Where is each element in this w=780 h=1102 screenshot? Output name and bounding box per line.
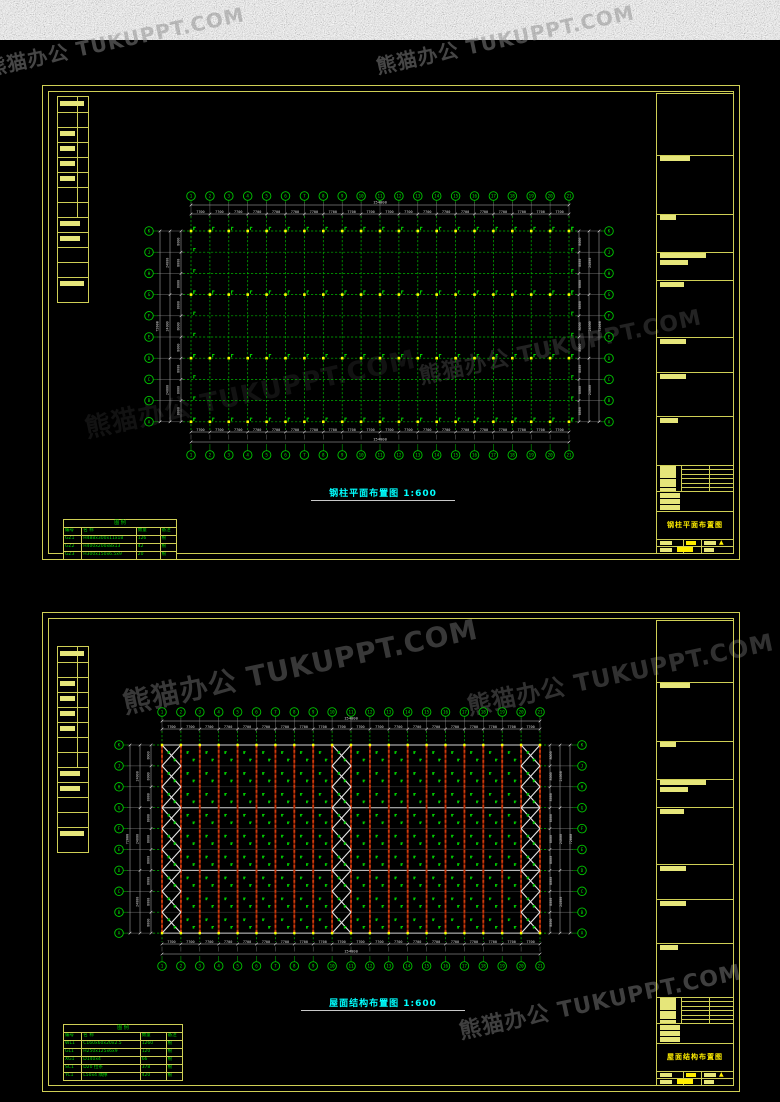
legend-header-cell: 备注 bbox=[161, 528, 176, 535]
strip-row-line bbox=[58, 157, 88, 158]
titleblock-table-line bbox=[681, 487, 733, 488]
strip-row-line bbox=[58, 722, 88, 723]
titleblock-table-line bbox=[681, 1019, 733, 1020]
svg-text:72000: 72000 bbox=[125, 834, 129, 845]
svg-text:7700: 7700 bbox=[243, 725, 251, 729]
svg-text:19: 19 bbox=[500, 710, 506, 715]
titleblock-table-bar bbox=[660, 474, 676, 478]
legend-header-cell: 数量 bbox=[137, 528, 161, 535]
svg-text:17: 17 bbox=[491, 194, 497, 199]
titleblock-label-bar bbox=[660, 260, 688, 265]
svg-text:8000: 8000 bbox=[549, 814, 553, 822]
svg-text:7700: 7700 bbox=[253, 210, 261, 214]
svg-text:7700: 7700 bbox=[461, 210, 469, 214]
svg-text:24000: 24000 bbox=[135, 834, 139, 844]
legend-cell: 120 bbox=[141, 1049, 167, 1056]
svg-text:8000: 8000 bbox=[146, 919, 150, 927]
svg-text:7700: 7700 bbox=[385, 210, 393, 214]
svg-text:13: 13 bbox=[415, 453, 421, 458]
svg-text:15: 15 bbox=[453, 453, 459, 458]
svg-text:7700: 7700 bbox=[196, 428, 204, 432]
svg-text:7700: 7700 bbox=[518, 210, 526, 214]
svg-text:8000: 8000 bbox=[176, 301, 180, 309]
svg-text:7700: 7700 bbox=[234, 210, 242, 214]
legend-title: 图 例 bbox=[64, 520, 176, 528]
legend-data-row: XG1D140x466根 bbox=[64, 1057, 182, 1065]
svg-text:7700: 7700 bbox=[432, 725, 440, 729]
svg-text:8000: 8000 bbox=[578, 238, 582, 246]
svg-text:8000: 8000 bbox=[549, 877, 553, 885]
strip-row-line bbox=[58, 202, 88, 203]
svg-text:7700: 7700 bbox=[300, 940, 308, 944]
titleblock-table-divider bbox=[709, 997, 710, 1023]
strip-row-line bbox=[58, 127, 88, 128]
svg-text:7700: 7700 bbox=[337, 940, 345, 944]
legend-cell: 根 bbox=[161, 544, 176, 551]
svg-text:7700: 7700 bbox=[470, 725, 478, 729]
svg-text:7700: 7700 bbox=[366, 428, 374, 432]
svg-text:7700: 7700 bbox=[461, 428, 469, 432]
svg-text:8000: 8000 bbox=[578, 301, 582, 309]
titleblock-divider bbox=[657, 864, 733, 865]
strip-row-line bbox=[58, 277, 88, 278]
titleblock-drawing-name-text: 屋面结构布置图 bbox=[667, 1052, 723, 1062]
legend-cell: GZ3 bbox=[64, 552, 82, 559]
svg-text:24000: 24000 bbox=[165, 385, 169, 395]
svg-text:15: 15 bbox=[424, 964, 430, 969]
svg-text:7700: 7700 bbox=[356, 725, 364, 729]
svg-text:154000: 154000 bbox=[344, 949, 358, 954]
svg-text:24000: 24000 bbox=[588, 258, 592, 268]
titleblock-divider bbox=[657, 943, 733, 944]
svg-text:7700: 7700 bbox=[480, 428, 488, 432]
titleblock-table-divider bbox=[681, 997, 682, 1023]
sheet2-plan-title: 屋面结构布置图 1:600 bbox=[301, 996, 465, 1011]
strip-entry-bar bbox=[60, 651, 84, 656]
svg-text:8000: 8000 bbox=[578, 280, 582, 288]
roof-structure-plan-drawing: 7700770077007700770077007700770077007700… bbox=[43, 613, 739, 1091]
legend-cell: C160x60x20x2.5 bbox=[82, 1041, 140, 1048]
titleblock-label-bar bbox=[660, 156, 690, 161]
legend-header-cell: 名 称 bbox=[82, 1033, 140, 1040]
svg-text:7700: 7700 bbox=[480, 210, 488, 214]
svg-text:8000: 8000 bbox=[578, 259, 582, 267]
svg-text:8000: 8000 bbox=[146, 856, 150, 864]
svg-text:24000: 24000 bbox=[165, 321, 169, 331]
legend-cell: H400x200x8x13 bbox=[82, 544, 136, 551]
svg-text:154000: 154000 bbox=[373, 437, 387, 442]
sheet1-legend-table: 图 例编号名 称数量备注GZ1H488x300x11x18126根GZ2H400… bbox=[63, 519, 177, 560]
sheet2-title-block: 屋面结构布置图▲ bbox=[656, 620, 734, 1086]
strip-entry-bar bbox=[60, 146, 75, 151]
legend-header-cell: 数量 bbox=[141, 1033, 167, 1040]
titleblock-label-bar bbox=[660, 1025, 680, 1030]
svg-text:7700: 7700 bbox=[375, 940, 383, 944]
titleblock-divider bbox=[657, 899, 733, 900]
legend-title: 图 例 bbox=[64, 1025, 182, 1033]
svg-text:11: 11 bbox=[348, 710, 354, 715]
legend-data-row: GL1H250x125x6x9120根 bbox=[64, 1049, 182, 1057]
strip-row-line bbox=[58, 262, 88, 263]
strip-row-line bbox=[58, 752, 88, 753]
strip-row-line bbox=[58, 217, 88, 218]
svg-text:8000: 8000 bbox=[146, 772, 150, 780]
svg-text:24000: 24000 bbox=[135, 771, 139, 781]
svg-text:20: 20 bbox=[519, 710, 525, 715]
titleblock-table-line bbox=[681, 478, 733, 479]
svg-text:7700: 7700 bbox=[394, 725, 402, 729]
svg-text:13: 13 bbox=[415, 194, 421, 199]
svg-text:8000: 8000 bbox=[146, 793, 150, 801]
titleblock-label-bar bbox=[660, 493, 680, 498]
titleblock-label-bar bbox=[660, 505, 680, 510]
svg-text:7700: 7700 bbox=[262, 725, 270, 729]
svg-text:8000: 8000 bbox=[578, 407, 582, 415]
svg-text:7700: 7700 bbox=[329, 428, 337, 432]
svg-text:18: 18 bbox=[481, 710, 487, 715]
svg-text:21: 21 bbox=[566, 194, 572, 199]
legend-header-cell: 编号 bbox=[64, 1033, 82, 1040]
svg-text:8000: 8000 bbox=[549, 856, 553, 864]
legend-data-row: GZ3H300x150x6.5x920根 bbox=[64, 552, 176, 559]
legend-cell: 根 bbox=[161, 552, 176, 559]
strip-entry-bar bbox=[60, 726, 75, 731]
svg-text:7700: 7700 bbox=[489, 725, 497, 729]
titleblock-table-bar bbox=[660, 1002, 676, 1006]
svg-text:7700: 7700 bbox=[318, 940, 326, 944]
titleblock-table-bar bbox=[660, 483, 676, 487]
svg-text:7700: 7700 bbox=[536, 210, 544, 214]
svg-text:10: 10 bbox=[330, 964, 336, 969]
svg-text:16: 16 bbox=[443, 964, 449, 969]
legend-cell: 66 bbox=[141, 1057, 167, 1064]
svg-text:7700: 7700 bbox=[432, 940, 440, 944]
svg-text:21: 21 bbox=[566, 453, 572, 458]
svg-text:8000: 8000 bbox=[549, 835, 553, 843]
svg-text:7700: 7700 bbox=[423, 428, 431, 432]
svg-text:21: 21 bbox=[537, 964, 543, 969]
titleblock-label-bar bbox=[660, 945, 678, 950]
svg-text:7700: 7700 bbox=[366, 210, 374, 214]
svg-text:19: 19 bbox=[500, 964, 506, 969]
svg-text:7700: 7700 bbox=[442, 428, 450, 432]
svg-text:72000: 72000 bbox=[155, 321, 159, 332]
svg-text:24000: 24000 bbox=[559, 834, 563, 844]
titleblock-label-bar bbox=[660, 215, 676, 220]
strip-entry-bar bbox=[60, 786, 80, 791]
svg-text:7700: 7700 bbox=[272, 210, 280, 214]
titleblock-label-bar bbox=[660, 742, 676, 747]
svg-text:7700: 7700 bbox=[442, 210, 450, 214]
svg-text:7700: 7700 bbox=[536, 428, 544, 432]
legend-cell: 420 bbox=[141, 1073, 167, 1080]
svg-text:20: 20 bbox=[519, 964, 525, 969]
titleblock-divider bbox=[657, 280, 733, 281]
svg-text:72000: 72000 bbox=[569, 834, 573, 845]
svg-text:15: 15 bbox=[453, 194, 459, 199]
svg-text:8000: 8000 bbox=[176, 280, 180, 288]
svg-text:10: 10 bbox=[359, 194, 365, 199]
svg-text:7700: 7700 bbox=[281, 725, 289, 729]
svg-text:8000: 8000 bbox=[176, 386, 180, 394]
svg-text:7700: 7700 bbox=[281, 940, 289, 944]
svg-text:20: 20 bbox=[548, 194, 554, 199]
svg-text:7700: 7700 bbox=[224, 725, 232, 729]
strip-row-line bbox=[58, 142, 88, 143]
svg-text:8000: 8000 bbox=[549, 751, 553, 759]
titleblock-grid-bar bbox=[660, 548, 672, 552]
svg-text:16: 16 bbox=[443, 710, 449, 715]
svg-text:24000: 24000 bbox=[588, 385, 592, 395]
legend-cell: 20 bbox=[137, 552, 161, 559]
svg-text:18: 18 bbox=[510, 453, 516, 458]
legend-cell: 126 bbox=[137, 536, 161, 543]
svg-text:7700: 7700 bbox=[310, 428, 318, 432]
sheet1-plan-title: 钢柱平面布置图 1:600 bbox=[311, 486, 455, 501]
svg-text:24000: 24000 bbox=[135, 897, 139, 907]
svg-text:8000: 8000 bbox=[549, 919, 553, 927]
titleblock-table-bar bbox=[660, 1011, 676, 1015]
svg-text:J: J bbox=[608, 250, 611, 255]
titleblock-label-bar bbox=[660, 1037, 680, 1042]
legend-header-row: 编号名 称数量备注 bbox=[64, 528, 176, 536]
svg-text:7700: 7700 bbox=[507, 940, 515, 944]
legend-cell: 根 bbox=[167, 1041, 182, 1048]
strip-row-line bbox=[58, 812, 88, 813]
svg-text:7700: 7700 bbox=[375, 725, 383, 729]
strip-entry-bar bbox=[60, 681, 75, 686]
strip-row-line bbox=[58, 827, 88, 828]
svg-text:11: 11 bbox=[348, 964, 354, 969]
titleblock-grid-bar bbox=[704, 1080, 714, 1084]
legend-cell: XG1 bbox=[64, 1057, 82, 1064]
legend-header-cell: 编号 bbox=[64, 528, 82, 535]
strip-entry-bar bbox=[60, 831, 84, 836]
svg-text:12: 12 bbox=[367, 964, 373, 969]
svg-text:15: 15 bbox=[424, 710, 430, 715]
svg-text:13: 13 bbox=[386, 710, 392, 715]
titleblock-table-line bbox=[681, 1006, 733, 1007]
legend-cell: 根 bbox=[167, 1057, 182, 1064]
legend-data-row: GZ1H488x300x11x18126根 bbox=[64, 536, 176, 544]
svg-text:7700: 7700 bbox=[356, 940, 364, 944]
strip-entry-bar bbox=[60, 221, 80, 226]
titleblock-divider bbox=[657, 372, 733, 373]
legend-cell: SC1 bbox=[64, 1065, 82, 1072]
svg-text:24000: 24000 bbox=[165, 258, 169, 268]
svg-text:14: 14 bbox=[434, 194, 440, 199]
titleblock-divider bbox=[657, 337, 733, 338]
svg-text:7700: 7700 bbox=[499, 210, 507, 214]
strip-entry-bar bbox=[60, 236, 80, 241]
titleblock-table-bar bbox=[660, 479, 676, 483]
legend-cell: H250x125x6x9 bbox=[82, 1049, 140, 1056]
svg-text:8000: 8000 bbox=[549, 793, 553, 801]
svg-text:J: J bbox=[581, 764, 584, 769]
strip-row-line bbox=[58, 247, 88, 248]
strip-row-line bbox=[58, 172, 88, 173]
svg-text:8000: 8000 bbox=[146, 898, 150, 906]
legend-cell: WL1 bbox=[64, 1041, 82, 1048]
legend-data-row: SC1D20 拉条378根 bbox=[64, 1065, 182, 1073]
svg-text:14: 14 bbox=[434, 453, 440, 458]
titleblock-table-bar bbox=[660, 470, 676, 474]
strip-row-line bbox=[58, 232, 88, 233]
titleblock-table-divider bbox=[709, 465, 710, 491]
legend-data-row: WL1C160x60x20x2.51260根 bbox=[64, 1041, 182, 1049]
titleblock-table-bar bbox=[660, 466, 676, 470]
titleblock-label-bar bbox=[660, 253, 706, 258]
titleblock-label-bar bbox=[660, 901, 686, 906]
svg-text:8000: 8000 bbox=[176, 322, 180, 330]
svg-text:24000: 24000 bbox=[588, 321, 592, 331]
svg-text:21: 21 bbox=[537, 710, 543, 715]
svg-text:8000: 8000 bbox=[176, 344, 180, 352]
strip-entry-bar bbox=[60, 696, 75, 701]
titleblock-table-bar bbox=[660, 1015, 676, 1019]
svg-text:7700: 7700 bbox=[318, 725, 326, 729]
titleblock-drawing-name-text: 钢柱平面布置图 bbox=[667, 520, 723, 530]
svg-text:10: 10 bbox=[330, 710, 336, 715]
svg-text:12: 12 bbox=[367, 710, 373, 715]
titleblock-table-bar bbox=[660, 998, 676, 1002]
svg-text:7700: 7700 bbox=[186, 725, 194, 729]
svg-text:17: 17 bbox=[462, 964, 468, 969]
svg-text:7700: 7700 bbox=[451, 940, 459, 944]
titleblock-table-line bbox=[681, 474, 733, 475]
svg-text:17: 17 bbox=[491, 453, 497, 458]
svg-text:7700: 7700 bbox=[526, 725, 534, 729]
titleblock-label-bar bbox=[660, 780, 706, 785]
svg-text:7700: 7700 bbox=[291, 210, 299, 214]
legend-cell: YC1 bbox=[64, 1073, 82, 1080]
titleblock-grid-bar bbox=[704, 1073, 716, 1077]
titleblock-label-bar bbox=[660, 282, 684, 287]
titleblock-label-bar bbox=[660, 418, 678, 423]
legend-cell: 根 bbox=[161, 536, 176, 543]
titleblock-label-bar bbox=[660, 787, 688, 792]
strip-row-line bbox=[58, 677, 88, 678]
svg-text:18: 18 bbox=[481, 964, 487, 969]
strip-row-line bbox=[58, 782, 88, 783]
titleblock-table-line bbox=[681, 1015, 733, 1016]
legend-cell: 378 bbox=[141, 1065, 167, 1072]
legend-cell: L50x4 隅撑 bbox=[82, 1073, 140, 1080]
titleblock-table-divider bbox=[681, 465, 682, 491]
titleblock-drawing-name: 屋面结构布置图 bbox=[657, 1043, 733, 1071]
svg-text:7700: 7700 bbox=[413, 725, 421, 729]
svg-text:7700: 7700 bbox=[253, 428, 261, 432]
svg-text:13: 13 bbox=[386, 964, 392, 969]
svg-text:8000: 8000 bbox=[146, 877, 150, 885]
strip-entry-bar bbox=[60, 101, 84, 106]
sheet2-signature-strip bbox=[57, 646, 89, 853]
svg-text:7700: 7700 bbox=[272, 428, 280, 432]
strip-row-line bbox=[58, 112, 88, 113]
static-noise-band bbox=[0, 0, 780, 40]
strip-entry-bar bbox=[60, 176, 75, 181]
column-markers bbox=[190, 227, 574, 423]
svg-text:14: 14 bbox=[405, 710, 411, 715]
titleblock-grid-bar bbox=[686, 1073, 696, 1077]
legend-cell: GZ1 bbox=[64, 536, 82, 543]
titleblock-divider bbox=[657, 807, 733, 808]
north-arrow-icon: ▲ bbox=[719, 540, 724, 546]
svg-text:8000: 8000 bbox=[176, 365, 180, 373]
legend-data-row: GZ2H400x200x8x1342根 bbox=[64, 544, 176, 552]
svg-text:7700: 7700 bbox=[451, 725, 459, 729]
titleblock-grid-bar bbox=[660, 1073, 672, 1077]
titleblock-table-line bbox=[681, 1010, 733, 1011]
svg-text:7700: 7700 bbox=[243, 940, 251, 944]
strip-col-line bbox=[77, 97, 78, 217]
svg-text:7700: 7700 bbox=[262, 940, 270, 944]
titleblock-grid-bar bbox=[677, 1079, 693, 1084]
titleblock-grid-bar bbox=[677, 547, 693, 552]
dimension-lines: 7700770077007700770077007700770077007700… bbox=[155, 200, 602, 444]
svg-text:7700: 7700 bbox=[224, 940, 232, 944]
svg-text:8000: 8000 bbox=[578, 322, 582, 330]
strip-entry-bar bbox=[60, 131, 75, 136]
svg-text:7700: 7700 bbox=[394, 940, 402, 944]
svg-text:7700: 7700 bbox=[507, 725, 515, 729]
svg-text:8000: 8000 bbox=[176, 407, 180, 415]
svg-text:7700: 7700 bbox=[215, 210, 223, 214]
strip-entry-bar bbox=[60, 161, 75, 166]
strip-row-line bbox=[58, 767, 88, 768]
svg-text:72000: 72000 bbox=[598, 321, 602, 332]
titleblock-table-line bbox=[681, 483, 733, 484]
svg-text:7700: 7700 bbox=[347, 210, 355, 214]
svg-text:7700: 7700 bbox=[167, 940, 175, 944]
svg-text:11: 11 bbox=[377, 194, 383, 199]
svg-text:8000: 8000 bbox=[146, 835, 150, 843]
north-arrow-icon: ▲ bbox=[719, 1072, 724, 1078]
svg-text:8000: 8000 bbox=[578, 344, 582, 352]
titleblock-divider bbox=[657, 1023, 733, 1024]
svg-text:8000: 8000 bbox=[549, 898, 553, 906]
svg-text:7700: 7700 bbox=[385, 428, 393, 432]
titleblock-label-bar bbox=[660, 374, 686, 379]
titleblock-label-bar bbox=[660, 1031, 680, 1036]
svg-text:8000: 8000 bbox=[146, 751, 150, 759]
svg-text:11: 11 bbox=[377, 453, 383, 458]
strip-row-line bbox=[58, 737, 88, 738]
strip-entry-bar bbox=[60, 711, 75, 716]
dimension-lines: 7700770077007700770077007700770077007700… bbox=[125, 716, 573, 956]
titleblock-label-bar bbox=[660, 339, 686, 344]
legend-cell: GL1 bbox=[64, 1049, 82, 1056]
titleblock-drawing-name: 钢柱平面布置图 bbox=[657, 511, 733, 539]
svg-text:7700: 7700 bbox=[167, 725, 175, 729]
svg-text:7700: 7700 bbox=[205, 725, 213, 729]
legend-cell: D140x4 bbox=[82, 1057, 140, 1064]
titleblock-grid-bar bbox=[704, 541, 716, 545]
svg-text:7700: 7700 bbox=[499, 428, 507, 432]
legend-cell: 根 bbox=[167, 1049, 182, 1056]
svg-text:24000: 24000 bbox=[559, 771, 563, 781]
svg-text:8000: 8000 bbox=[146, 814, 150, 822]
titleblock-grid-bar bbox=[686, 541, 696, 545]
svg-text:7700: 7700 bbox=[205, 940, 213, 944]
svg-text:7700: 7700 bbox=[196, 210, 204, 214]
sheet2-plan-title-text: 屋面结构布置图 1:600 bbox=[329, 999, 437, 1009]
legend-cell: H488x300x11x18 bbox=[82, 536, 136, 543]
titleblock-grid-divider bbox=[701, 539, 702, 553]
legend-cell: 42 bbox=[137, 544, 161, 551]
svg-text:10: 10 bbox=[359, 453, 365, 458]
svg-text:7700: 7700 bbox=[518, 428, 526, 432]
